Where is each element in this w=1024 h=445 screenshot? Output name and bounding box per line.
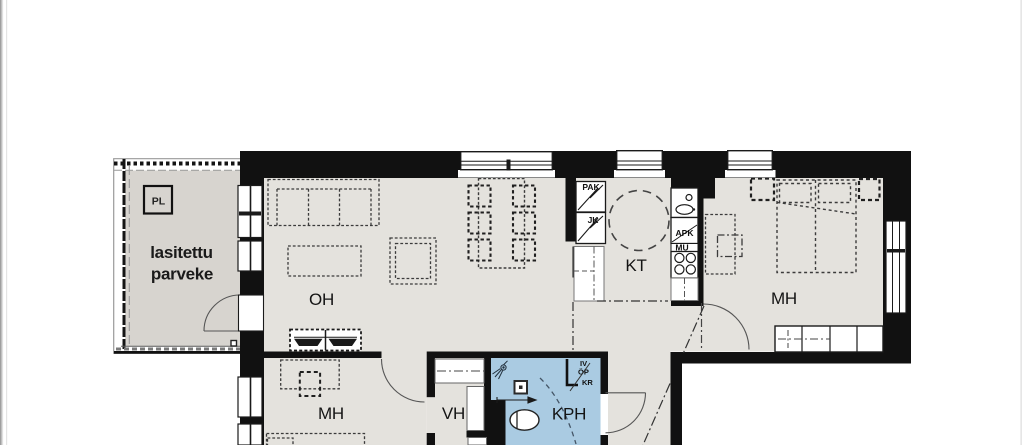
svg-text:parveke: parveke <box>151 265 213 284</box>
svg-text:PAK: PAK <box>582 182 600 192</box>
svg-text:OH: OH <box>309 290 334 309</box>
svg-text:MH: MH <box>318 404 344 423</box>
svg-text:KR: KR <box>582 378 593 387</box>
svg-text:APK: APK <box>676 228 695 238</box>
svg-text:MH: MH <box>771 289 797 308</box>
svg-text:lasitettu: lasitettu <box>150 243 212 262</box>
svg-text:KT: KT <box>625 256 646 275</box>
svg-text:JK: JK <box>588 215 600 225</box>
svg-text:PL: PL <box>152 196 166 208</box>
svg-text:KPH: KPH <box>552 405 586 424</box>
svg-text:VH: VH <box>442 404 465 423</box>
